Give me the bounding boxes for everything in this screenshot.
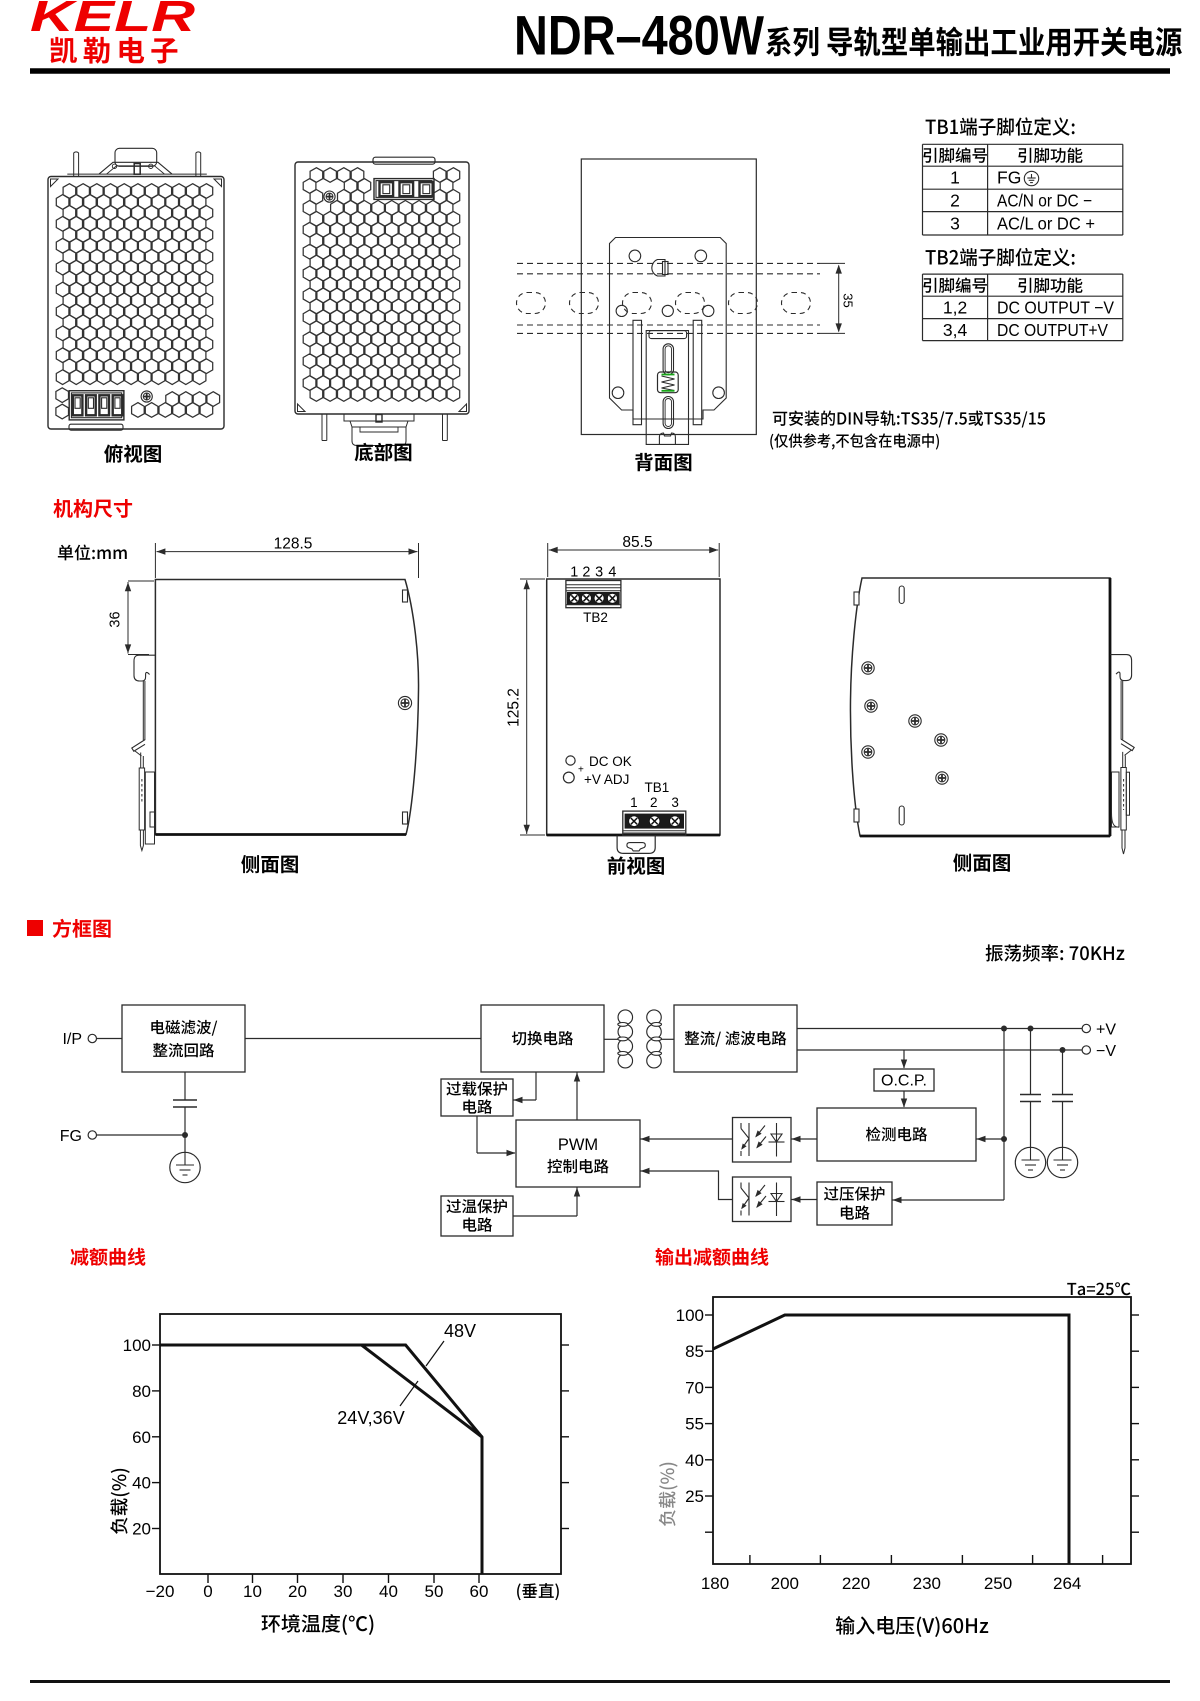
svg-text:30: 30	[334, 1582, 353, 1601]
svg-text:2: 2	[650, 795, 658, 810]
svg-text:TB2: TB2	[583, 610, 608, 625]
svg-text:3: 3	[950, 214, 960, 234]
svg-text:−20: −20	[146, 1582, 175, 1601]
svg-text:200: 200	[771, 1574, 799, 1593]
svg-text:100: 100	[676, 1306, 704, 1325]
svg-text:1: 1	[950, 168, 960, 188]
svg-text:DC OUTPUT+V: DC OUTPUT+V	[997, 320, 1108, 340]
svg-text:80: 80	[132, 1382, 151, 1401]
svg-text:250: 250	[984, 1574, 1012, 1593]
svg-text:100: 100	[123, 1336, 151, 1355]
svg-text:FG: FG	[60, 1128, 82, 1145]
svg-text:FG: FG	[997, 168, 1021, 188]
svg-text:PWM: PWM	[558, 1136, 598, 1154]
svg-text:−V: −V	[1096, 1043, 1116, 1060]
svg-text:2: 2	[950, 191, 960, 211]
svg-text:60: 60	[132, 1428, 151, 1447]
svg-text:40: 40	[685, 1451, 704, 1470]
svg-text:10: 10	[243, 1582, 262, 1601]
svg-text:20: 20	[288, 1582, 307, 1601]
svg-text:230: 230	[913, 1574, 941, 1593]
svg-text:DC OK: DC OK	[589, 754, 632, 769]
svg-text:TB1: TB1	[645, 780, 670, 795]
svg-text:4: 4	[608, 564, 616, 580]
svg-text:2: 2	[582, 564, 590, 580]
svg-text:O.C.P.: O.C.P.	[881, 1073, 927, 1090]
svg-text:50: 50	[425, 1582, 444, 1601]
svg-text:1: 1	[630, 795, 638, 810]
svg-text:1,2: 1,2	[943, 298, 967, 318]
svg-text:60: 60	[470, 1582, 489, 1601]
svg-text:36: 36	[108, 611, 124, 627]
svg-text:KELR: KELR	[30, 0, 195, 41]
svg-text:20: 20	[132, 1520, 151, 1539]
svg-text:48V: 48V	[444, 1321, 476, 1341]
svg-text:55: 55	[685, 1415, 704, 1434]
svg-text:3,4: 3,4	[943, 320, 968, 340]
svg-text:NDR–480W: NDR–480W	[514, 4, 764, 67]
svg-text:40: 40	[132, 1474, 151, 1493]
svg-text:3: 3	[595, 564, 603, 580]
svg-text:AC/N or DC −: AC/N or DC −	[997, 191, 1092, 211]
svg-text:DC OUTPUT −V: DC OUTPUT −V	[997, 298, 1114, 318]
svg-text:220: 220	[842, 1574, 870, 1593]
svg-text:128.5: 128.5	[274, 536, 313, 553]
svg-text:85.5: 85.5	[622, 534, 652, 551]
svg-text:125.2: 125.2	[506, 688, 523, 727]
svg-text:40: 40	[379, 1582, 398, 1601]
svg-text:180: 180	[701, 1574, 729, 1593]
svg-text:3: 3	[671, 795, 679, 810]
svg-text:24V,36V: 24V,36V	[337, 1408, 404, 1428]
svg-text:0: 0	[203, 1582, 212, 1601]
svg-text:264: 264	[1053, 1574, 1081, 1593]
svg-text:25: 25	[685, 1487, 704, 1506]
svg-text:+V ADJ: +V ADJ	[584, 772, 629, 787]
svg-text:70: 70	[685, 1378, 704, 1397]
svg-text:I/P: I/P	[62, 1031, 82, 1048]
svg-text:1: 1	[570, 564, 578, 580]
svg-text:85: 85	[685, 1342, 704, 1361]
svg-text:35: 35	[841, 293, 856, 307]
svg-text:+V: +V	[1096, 1022, 1116, 1039]
svg-text:AC/L or DC +: AC/L or DC +	[997, 214, 1095, 234]
